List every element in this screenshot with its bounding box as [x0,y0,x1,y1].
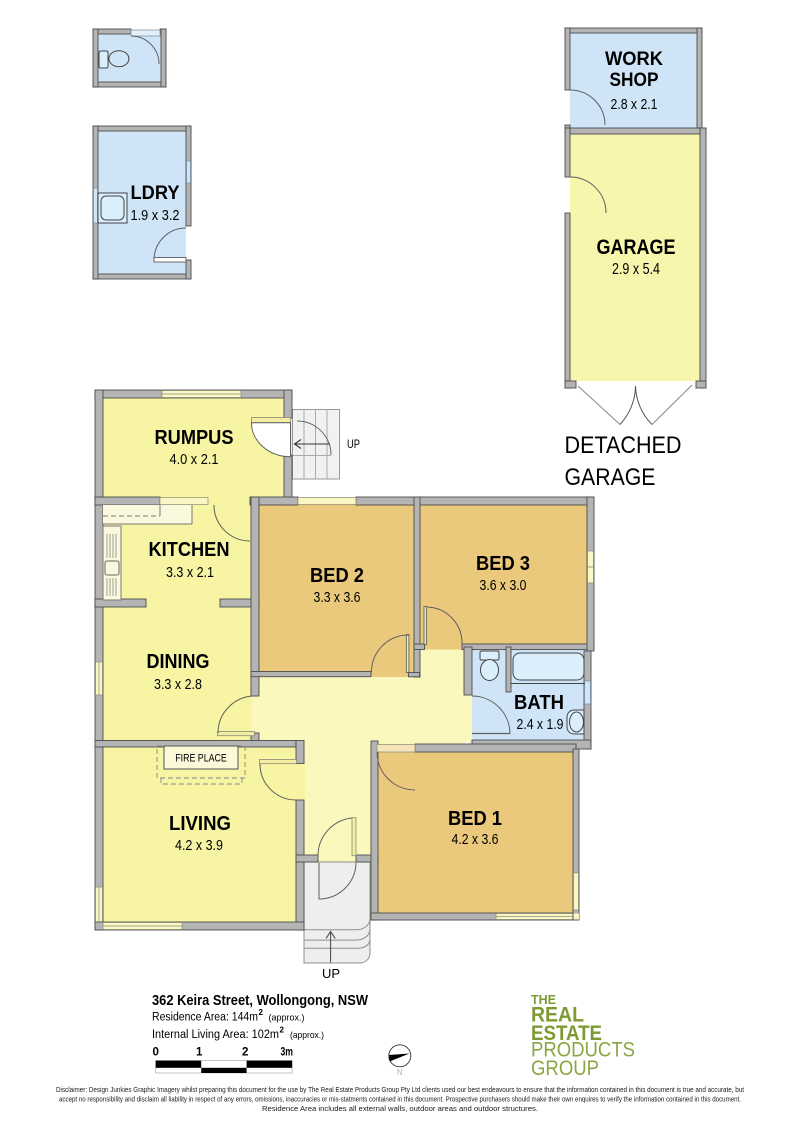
svg-text:BED 1: BED 1 [448,808,502,830]
svg-text:UP: UP [347,437,360,451]
svg-text:Internal Living Area: 102m: Internal Living Area: 102m [152,1029,279,1041]
svg-text:4.0 x 2.1: 4.0 x 2.1 [170,452,219,468]
svg-text:DETACHED: DETACHED [565,432,682,459]
svg-text:GARAGE: GARAGE [597,236,676,259]
svg-text:2.4 x 1.9: 2.4 x 1.9 [517,717,564,733]
svg-text:KITCHEN: KITCHEN [149,539,230,561]
svg-text:Residence Area includes all ex: Residence Area includes all external wal… [262,1104,538,1113]
svg-text:Disclaimer: Design Junkies Gra: Disclaimer: Design Junkies Graphic Image… [56,1085,744,1094]
svg-text:FIRE PLACE: FIRE PLACE [175,753,227,765]
svg-text:BATH: BATH [514,692,564,714]
svg-text:(approx.): (approx.) [269,1013,305,1024]
svg-text:3.3 x 2.1: 3.3 x 2.1 [166,565,214,581]
svg-text:4.2 x 3.6: 4.2 x 3.6 [452,832,499,848]
svg-text:RUMPUS: RUMPUS [155,427,234,449]
svg-text:2.8 x 2.1: 2.8 x 2.1 [611,97,658,113]
svg-text:UP: UP [322,966,340,981]
svg-text:4.2 x 3.9: 4.2 x 3.9 [175,838,223,854]
svg-text:LIVING: LIVING [169,813,231,835]
svg-text:2: 2 [242,1047,248,1059]
svg-text:1: 1 [196,1047,203,1059]
svg-text:(approx.): (approx.) [290,1030,324,1041]
svg-text:N: N [397,1068,403,1077]
svg-text:362 Keira Street, Wollongong,: 362 Keira Street, Wollongong, NSW [152,993,368,1009]
svg-text:BED 2: BED 2 [310,565,364,587]
svg-text:Residence Area: 144m: Residence Area: 144m [152,1012,258,1024]
svg-text:DINING: DINING [147,651,210,673]
svg-text:accept no responsibility and d: accept no responsibility and disclaim al… [59,1095,741,1104]
svg-text:GROUP: GROUP [531,1057,599,1080]
svg-text:3.3 x 3.6: 3.3 x 3.6 [314,590,361,606]
svg-text:SHOP: SHOP [610,70,659,91]
svg-text:3m: 3m [281,1047,294,1059]
svg-text:2: 2 [259,1008,264,1017]
svg-text:3.6 x 3.0: 3.6 x 3.0 [480,578,527,594]
svg-text:GARAGE: GARAGE [565,464,656,491]
svg-text:2: 2 [280,1026,285,1035]
svg-text:3.3 x 2.8: 3.3 x 2.8 [154,677,202,693]
svg-text:WORK: WORK [605,49,663,70]
svg-text:2.9 x 5.4: 2.9 x 5.4 [612,261,660,278]
svg-text:LDRY: LDRY [131,183,180,204]
svg-text:0: 0 [153,1047,159,1059]
svg-text:1.9 x 3.2: 1.9 x 3.2 [131,208,180,224]
svg-text:BED 3: BED 3 [476,553,530,575]
